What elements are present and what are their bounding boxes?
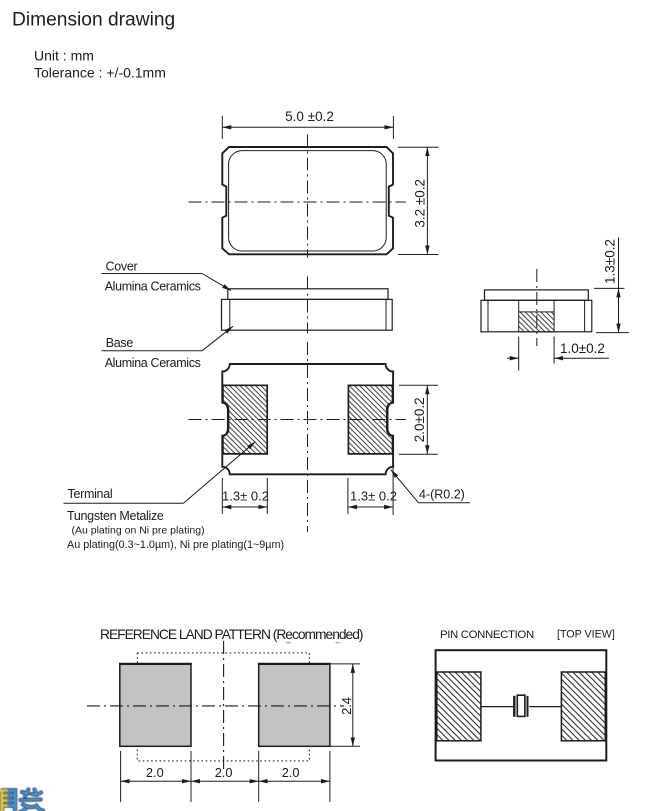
svg-text:Au plating(0.3~1.0µm), Ni pre: Au plating(0.3~1.0µm), Ni pre plating(1~… (67, 539, 284, 551)
svg-text:Alumina Ceramics: Alumina Ceramics (105, 356, 201, 370)
svg-text:PIN CONNECTION: PIN CONNECTION (440, 629, 534, 641)
svg-text:2.0: 2.0 (282, 765, 300, 780)
svg-text:2.4: 2.4 (339, 697, 354, 715)
svg-text:Tolerance : +/-0.1mm: Tolerance : +/-0.1mm (34, 65, 166, 81)
svg-text:1.0±0.2: 1.0±0.2 (560, 341, 605, 356)
svg-text:[TOP VIEW]: [TOP VIEW] (557, 629, 615, 641)
svg-text:Unit : mm: Unit : mm (34, 47, 94, 63)
svg-text:REFERENCE LAND PATTERN (Recomm: REFERENCE LAND PATTERN (Recommended) (100, 627, 363, 642)
svg-text:Cover: Cover (106, 260, 138, 274)
svg-text:1.3± 0.2: 1.3± 0.2 (222, 488, 269, 503)
svg-text:Tungsten Metalize: Tungsten Metalize (67, 509, 164, 523)
svg-text:2.0±0.2: 2.0±0.2 (412, 397, 427, 442)
svg-text:4-(R0.2): 4-(R0.2) (419, 488, 465, 502)
svg-text:Base: Base (106, 336, 134, 350)
svg-text:2.0: 2.0 (215, 765, 233, 780)
svg-text:Alumina Ceramics: Alumina Ceramics (105, 279, 201, 293)
svg-text:1.3± 0.2: 1.3± 0.2 (350, 488, 397, 503)
svg-text:5.0 ±0.2: 5.0 ±0.2 (285, 109, 334, 124)
svg-text:Terminal: Terminal (68, 487, 113, 501)
svg-text:(Au plating on Ni pre plating): (Au plating on Ni pre plating) (72, 524, 205, 536)
svg-text:Dimension drawing: Dimension drawing (12, 10, 175, 31)
svg-text:1.3±0.2: 1.3±0.2 (602, 239, 617, 284)
svg-text:3.2 ±0.2: 3.2 ±0.2 (412, 179, 427, 228)
svg-text:2.0: 2.0 (146, 765, 164, 780)
